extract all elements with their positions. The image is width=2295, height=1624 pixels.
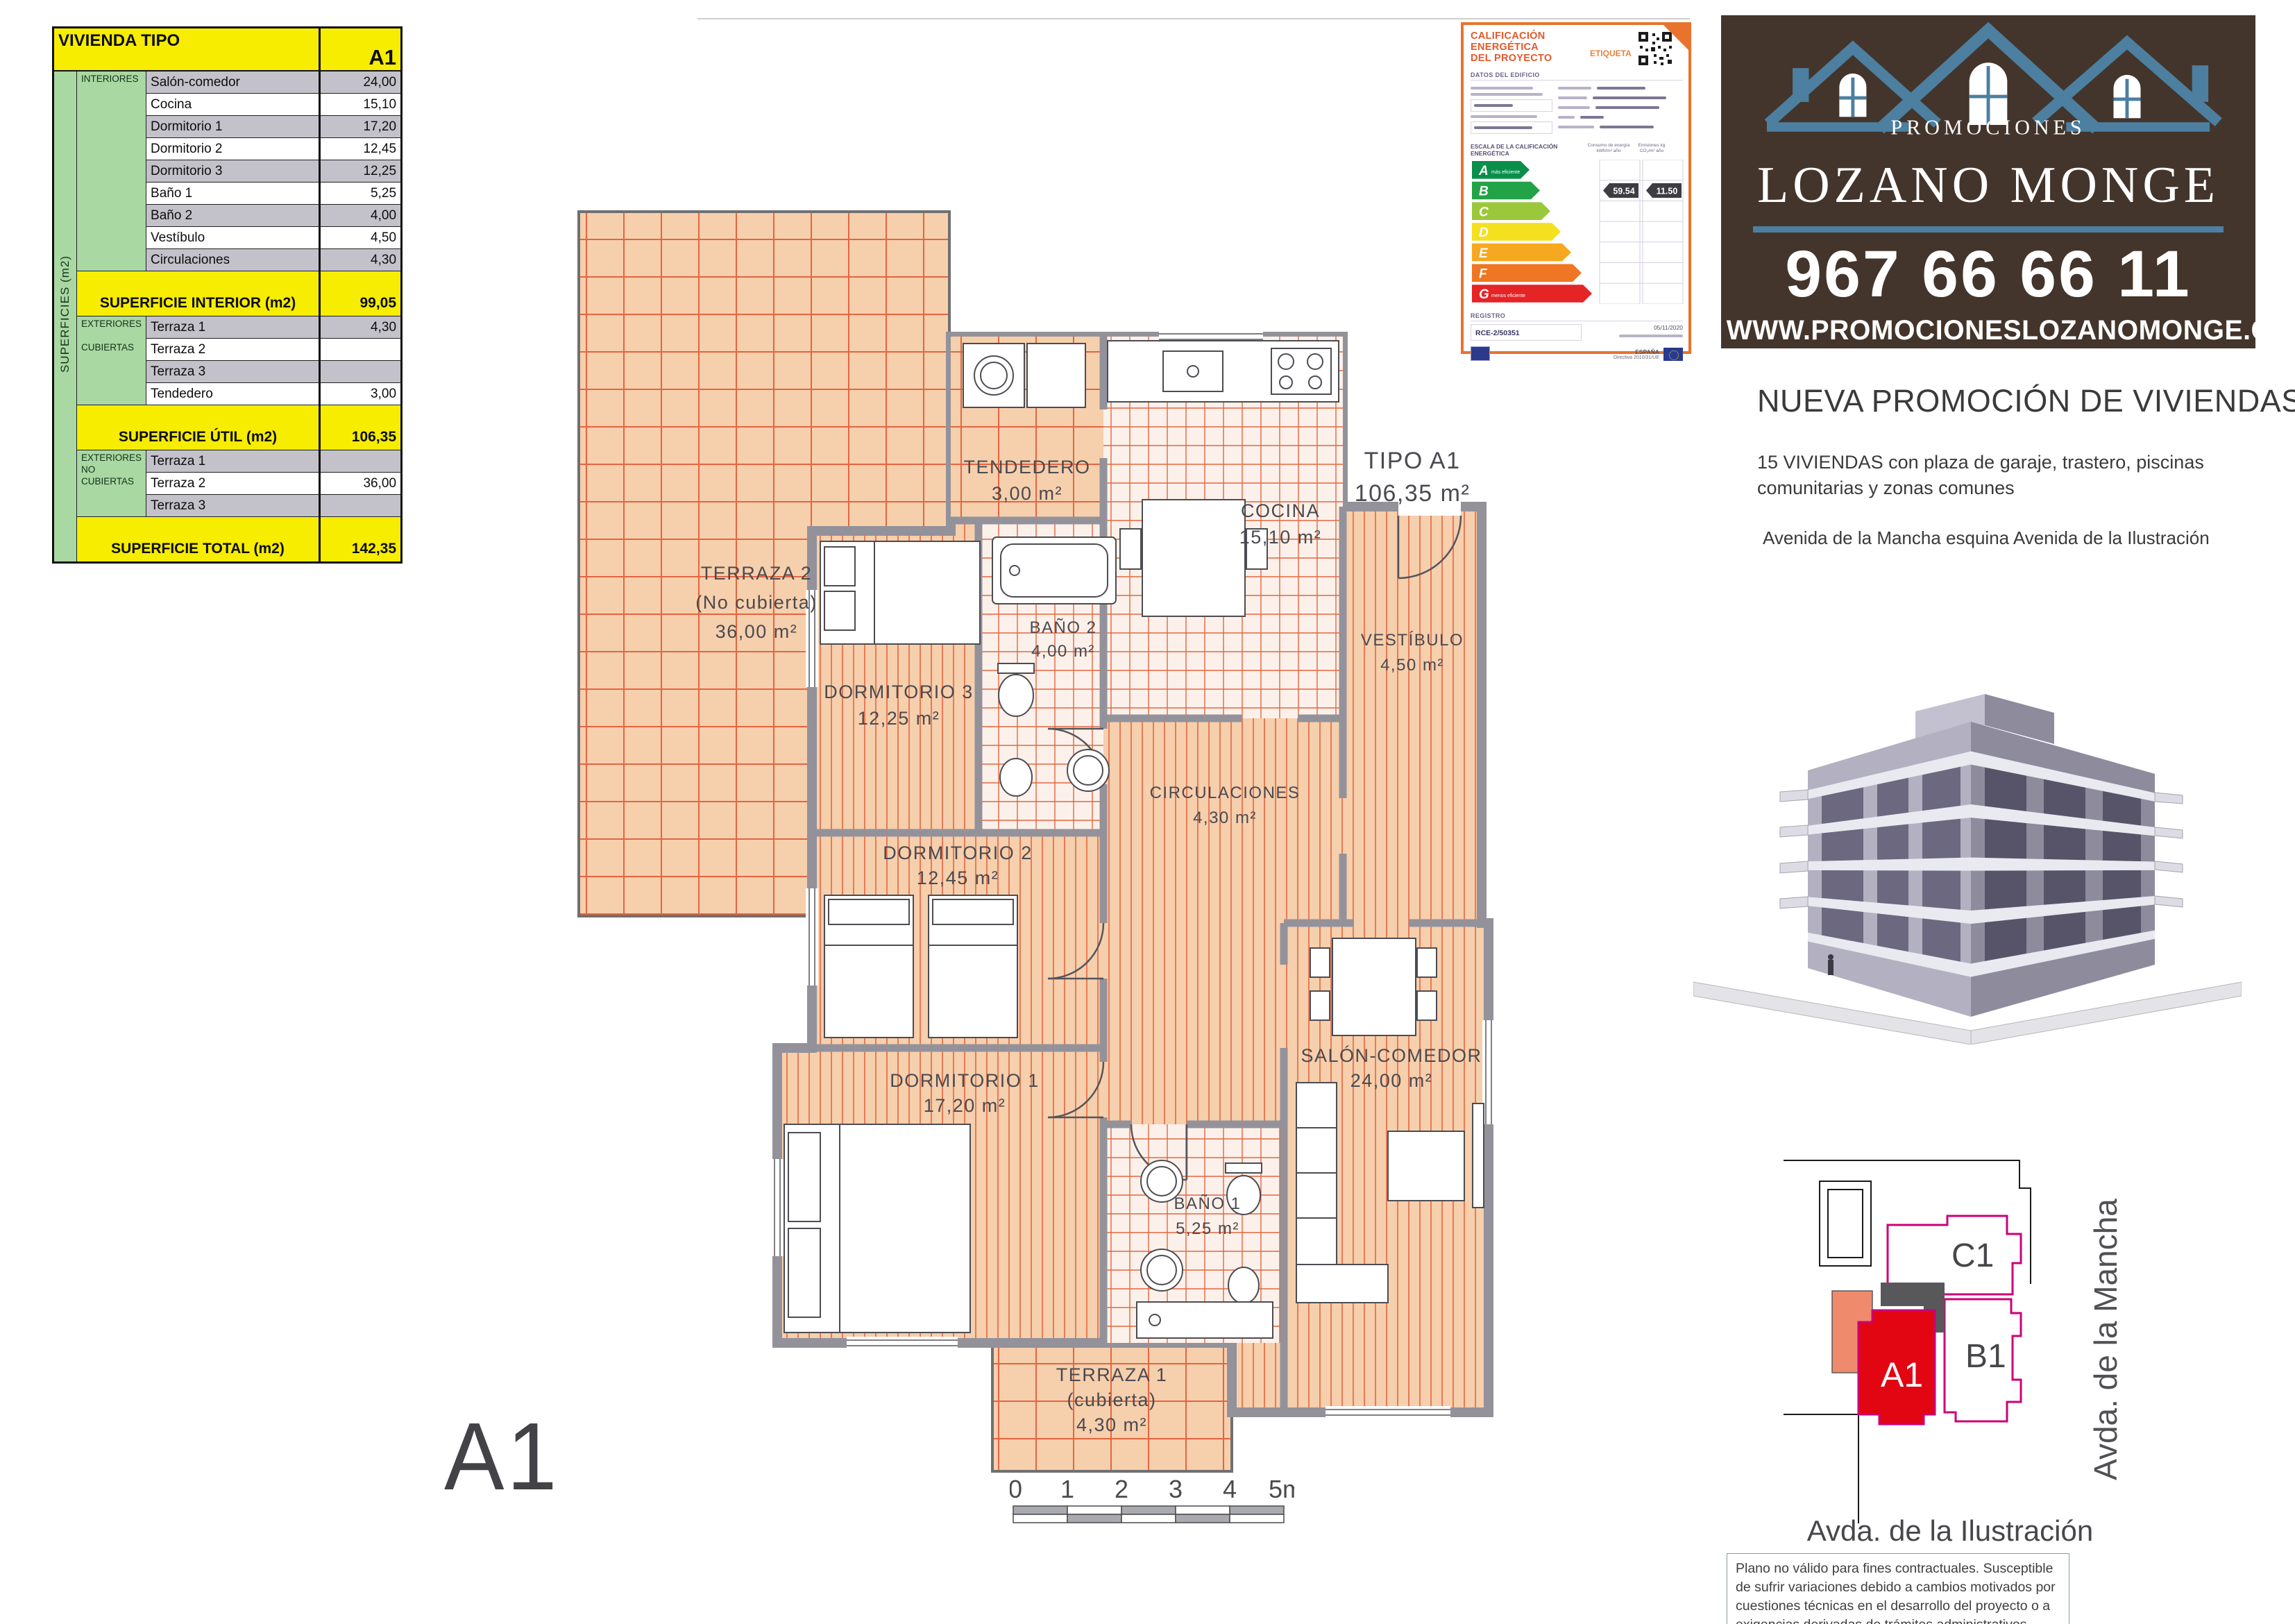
cert-building-fields <box>1471 83 1683 137</box>
plan-type-label: TIPO A1 <box>1364 448 1461 474</box>
row-label: Terraza 3 <box>146 361 320 383</box>
row-value <box>320 450 402 473</box>
scale-letter: B <box>1479 185 1489 199</box>
total-value: 99,05 <box>320 271 402 316</box>
room-area-terraza1: 4,30 m² <box>1076 1414 1147 1435</box>
row-value: 17,20 <box>320 116 402 138</box>
row-value: 12,45 <box>320 138 402 160</box>
row-label: Terraza 1 <box>146 316 320 339</box>
street-label-ilustracion: Avda. de la Ilustración <box>1807 1514 2093 1547</box>
scale-tick: 3 <box>1169 1477 1183 1503</box>
room-area-circulaciones: 4,30 m² <box>1193 809 1257 827</box>
row-label: Terraza 1 <box>146 450 320 473</box>
scale-bar: 0 1 2 3 4 5m <box>1010 1477 1294 1532</box>
row-label: Baño 2 <box>146 205 320 227</box>
row-label: Tendedero <box>146 383 320 405</box>
cert-date: 05/11/2020 <box>1619 324 1683 331</box>
street-label-mancha: Avda. de la Mancha <box>2087 1199 2124 1480</box>
row-value <box>320 339 402 361</box>
furniture-tendedero <box>963 344 1085 407</box>
total-label: SUPERFICIE INTERIOR (m2) <box>77 271 320 316</box>
plan-type-area: 106,35 m² <box>1355 480 1471 507</box>
banner-phone: 967 66 66 11 <box>1721 237 2255 312</box>
total-row-total: SUPERFICIE TOTAL (m2) 142,35 <box>53 517 402 563</box>
group-ext-no-cubiertas: EXTERIORES NO CUBIERTAS <box>77 450 146 517</box>
cert-datos-header: DATOS DEL EDIFICIO <box>1471 71 1683 81</box>
row-value: 5,25 <box>320 183 402 205</box>
promo-heading: NUEVA PROMOCIÓN DE VIVIENDAS <box>1757 383 2243 419</box>
scale-letter: G <box>1479 288 1489 303</box>
room-area-terraza2: 36,00 m² <box>715 621 798 642</box>
furniture-dormitorio3 <box>820 541 980 644</box>
group-interiores: INTERIORES <box>77 71 146 271</box>
scale-note: más eficiente <box>1491 170 1520 175</box>
cert-etiqueta-label: ETIQUETA <box>1590 49 1632 58</box>
row-label: Terraza 3 <box>146 495 320 517</box>
scale-tick: 1 <box>1060 1477 1074 1503</box>
row-value: 3,00 <box>320 383 402 405</box>
row-label: Dormitorio 3 <box>146 160 320 183</box>
room-area-vestibulo: 4,50 m² <box>1380 656 1444 675</box>
row-label: Dormitorio 1 <box>146 116 320 138</box>
scale-letter: F <box>1479 267 1488 282</box>
table-side-label: SUPERFICIES (m2) <box>53 71 77 563</box>
building-render <box>1693 656 2242 1044</box>
row-label: Terraza 2 <box>146 473 320 495</box>
room-label-terraza2-sub: (No cubierta) <box>695 592 818 613</box>
row-value: 4,00 <box>320 205 402 227</box>
unit-b1-label: B1 <box>1965 1338 2006 1375</box>
room-area-bano1: 5,25 m² <box>1176 1219 1239 1238</box>
cert-logo <box>1471 346 1490 361</box>
person-silhouette <box>1828 954 1834 975</box>
scale-tick: 0 <box>1010 1477 1022 1503</box>
banner-divider <box>1753 226 2224 232</box>
consumo-value: 59.54 <box>1613 187 1634 196</box>
room-label-terraza2: TERRAZA 2 <box>701 563 813 584</box>
table-header-row: VIVIENDA TIPO A1 <box>53 28 402 71</box>
room-label-cocina: COCINA <box>1241 500 1320 521</box>
sheet-unit-label: A1 <box>444 1402 559 1512</box>
plot-structure-inner <box>1828 1190 1863 1258</box>
site-plan: C1 B1 A1 Avda. de la Mancha Avda. de la … <box>1777 1124 2144 1555</box>
room-label-tendedero: TENDEDERO <box>963 457 1090 477</box>
scale-arrow-G <box>1472 285 1592 303</box>
room-area-tendedero: 3,00 m² <box>992 483 1062 504</box>
total-row-interior: SUPERFICIE INTERIOR (m2) 99,05 <box>53 271 402 316</box>
total-row-util: SUPERFICIE ÚTIL (m2) 106,35 <box>53 405 402 450</box>
table-row: SUPERFICIES (m2) INTERIORES Salón-comedo… <box>53 71 402 94</box>
scale-tick: 4 <box>1223 1477 1237 1503</box>
room-area-cocina: 15,10 m² <box>1239 527 1322 548</box>
banner-promociones: PROMOCIONES <box>1890 116 2085 139</box>
promo-address: Avenida de la Mancha esquina Avenida de … <box>1763 527 2242 549</box>
total-label: SUPERFICIE ÚTIL (m2) <box>77 405 320 450</box>
row-value: 4,50 <box>320 227 402 249</box>
room-label-circulaciones: CIRCULACIONES <box>1150 784 1301 802</box>
room-area-bano2: 4,00 m² <box>1031 642 1095 661</box>
scale-tick: 5m <box>1269 1477 1294 1503</box>
cert-date-block: 05/11/2020 <box>1619 324 1683 341</box>
table-title: VIVIENDA TIPO <box>53 28 320 71</box>
energy-scale-chart: A más eficiente B C D E F G menos eficie… <box>1471 160 1684 304</box>
total-value: 142,35 <box>320 517 402 563</box>
surface-table: VIVIENDA TIPO A1 SUPERFICIES (m2) INTERI… <box>52 26 403 564</box>
room-area-dormitorio3: 12,25 m² <box>858 708 940 729</box>
row-label: Circulaciones <box>146 249 320 271</box>
row-value: 15,10 <box>320 94 402 116</box>
cert-country: ESPAÑA <box>1614 348 1659 355</box>
room-label-dormitorio3: DORMITORIO 3 <box>824 682 974 702</box>
eu-flag-icon <box>1663 348 1683 361</box>
cert-corner-decoration <box>1663 25 1688 50</box>
cert-col2-header: Emisiones kg CO₂/m² año <box>1630 143 1673 157</box>
room-label-salon: SALÓN-COMEDOR <box>1301 1044 1482 1066</box>
scale-arrow-F <box>1472 264 1582 282</box>
unit-c1-label: C1 <box>1951 1237 1994 1274</box>
unit-a1-label: A1 <box>1881 1355 1923 1394</box>
group-ext-cubiertas: EXTERIORES CUBIERTAS <box>77 316 146 405</box>
scale-tick: 2 <box>1115 1477 1128 1503</box>
brand-banner: PROMOCIONES LOZANO MONGE 967 66 66 11 WW… <box>1721 15 2255 348</box>
scale-letter: C <box>1479 205 1489 220</box>
table-unit-type: A1 <box>320 28 402 71</box>
row-label: Salón-comedor <box>146 71 320 94</box>
scale-note: menos eficiente <box>1491 294 1525 298</box>
row-value <box>320 495 402 517</box>
floor-plan: TERRAZA 2 (No cubierta) 36,00 m² TENDEDE… <box>548 201 1603 1506</box>
scale-letter: A <box>1478 164 1489 178</box>
cert-title: CALIFICACIÓN ENERGÉTICA DEL PROYECTO <box>1471 31 1590 65</box>
plan-sheet-page: VIVIENDA TIPO A1 SUPERFICIES (m2) INTERI… <box>0 0 2295 1624</box>
room-area-dormitorio2: 12,45 m² <box>917 868 999 888</box>
disclaimer-box: Plano no válido para fines contractuales… <box>1727 1553 2069 1624</box>
emisiones-value: 11.50 <box>1657 187 1678 196</box>
cert-directive: Directiva 2010/31/UE <box>1614 355 1659 361</box>
scale-letter: D <box>1479 226 1489 240</box>
room-label-vestibulo: VESTÍBULO <box>1361 631 1464 650</box>
banner-website: WWW.PROMOCIONESLOZANOMONGE.COM <box>1727 315 2251 346</box>
scan-artifact-line <box>697 18 1690 19</box>
room-label-bano1: BAÑO 1 <box>1174 1194 1241 1213</box>
row-label: Vestíbulo <box>146 227 320 249</box>
row-label: Dormitorio 2 <box>146 138 320 160</box>
cert-col1-header: Consumo de energía kWh/m² año <box>1587 143 1630 157</box>
room-label-terraza1: TERRAZA 1 <box>1056 1364 1168 1385</box>
furniture-dormitorio1 <box>784 1124 970 1333</box>
row-label: Cocina <box>146 94 320 116</box>
promo-body: 15 VIVIENDAS con plaza de garaje, traste… <box>1757 450 2229 501</box>
room-label-dormitorio1: DORMITORIO 1 <box>890 1070 1040 1091</box>
room-area-dormitorio1: 17,20 m² <box>924 1095 1006 1116</box>
row-label: Terraza 2 <box>146 339 320 361</box>
table-row: EXTERIORES CUBIERTAS Terraza 1 4,30 <box>53 316 402 339</box>
total-label: SUPERFICIE TOTAL (m2) <box>77 517 320 563</box>
room-area-salon: 24,00 m² <box>1350 1070 1433 1091</box>
row-value: 4,30 <box>320 249 402 271</box>
room-label-dormitorio2: DORMITORIO 2 <box>883 843 1033 863</box>
scale-letter: E <box>1479 246 1489 261</box>
room-label-terraza1-sub: (cubierta) <box>1067 1389 1156 1410</box>
plot-boundary <box>1784 1414 1858 1523</box>
registro-value: RCE-2/50351 <box>1471 324 1582 341</box>
row-value: 12,25 <box>320 160 402 183</box>
cert-escala-header: ESCALA DE LA CALIFICACIÓN ENERGÉTICA <box>1471 143 1587 157</box>
banner-company-name: LOZANO MONGE <box>1721 156 2255 215</box>
row-value: 4,30 <box>320 316 402 339</box>
total-value: 106,35 <box>320 405 402 450</box>
row-label: Baño 1 <box>146 183 320 205</box>
room-label-bano2: BAÑO 2 <box>1029 618 1096 637</box>
row-value <box>320 361 402 383</box>
table-row: EXTERIORES NO CUBIERTAS Terraza 1 <box>53 450 402 473</box>
cert-registro-header: REGISTRO <box>1471 312 1683 321</box>
roofs-logo-icon: PROMOCIONES <box>1721 15 2255 154</box>
energy-certificate: CALIFICACIÓN ENERGÉTICA DEL PROYECTO ETI… <box>1461 22 1691 354</box>
row-value: 24,00 <box>320 71 402 94</box>
row-value: 36,00 <box>320 473 402 495</box>
